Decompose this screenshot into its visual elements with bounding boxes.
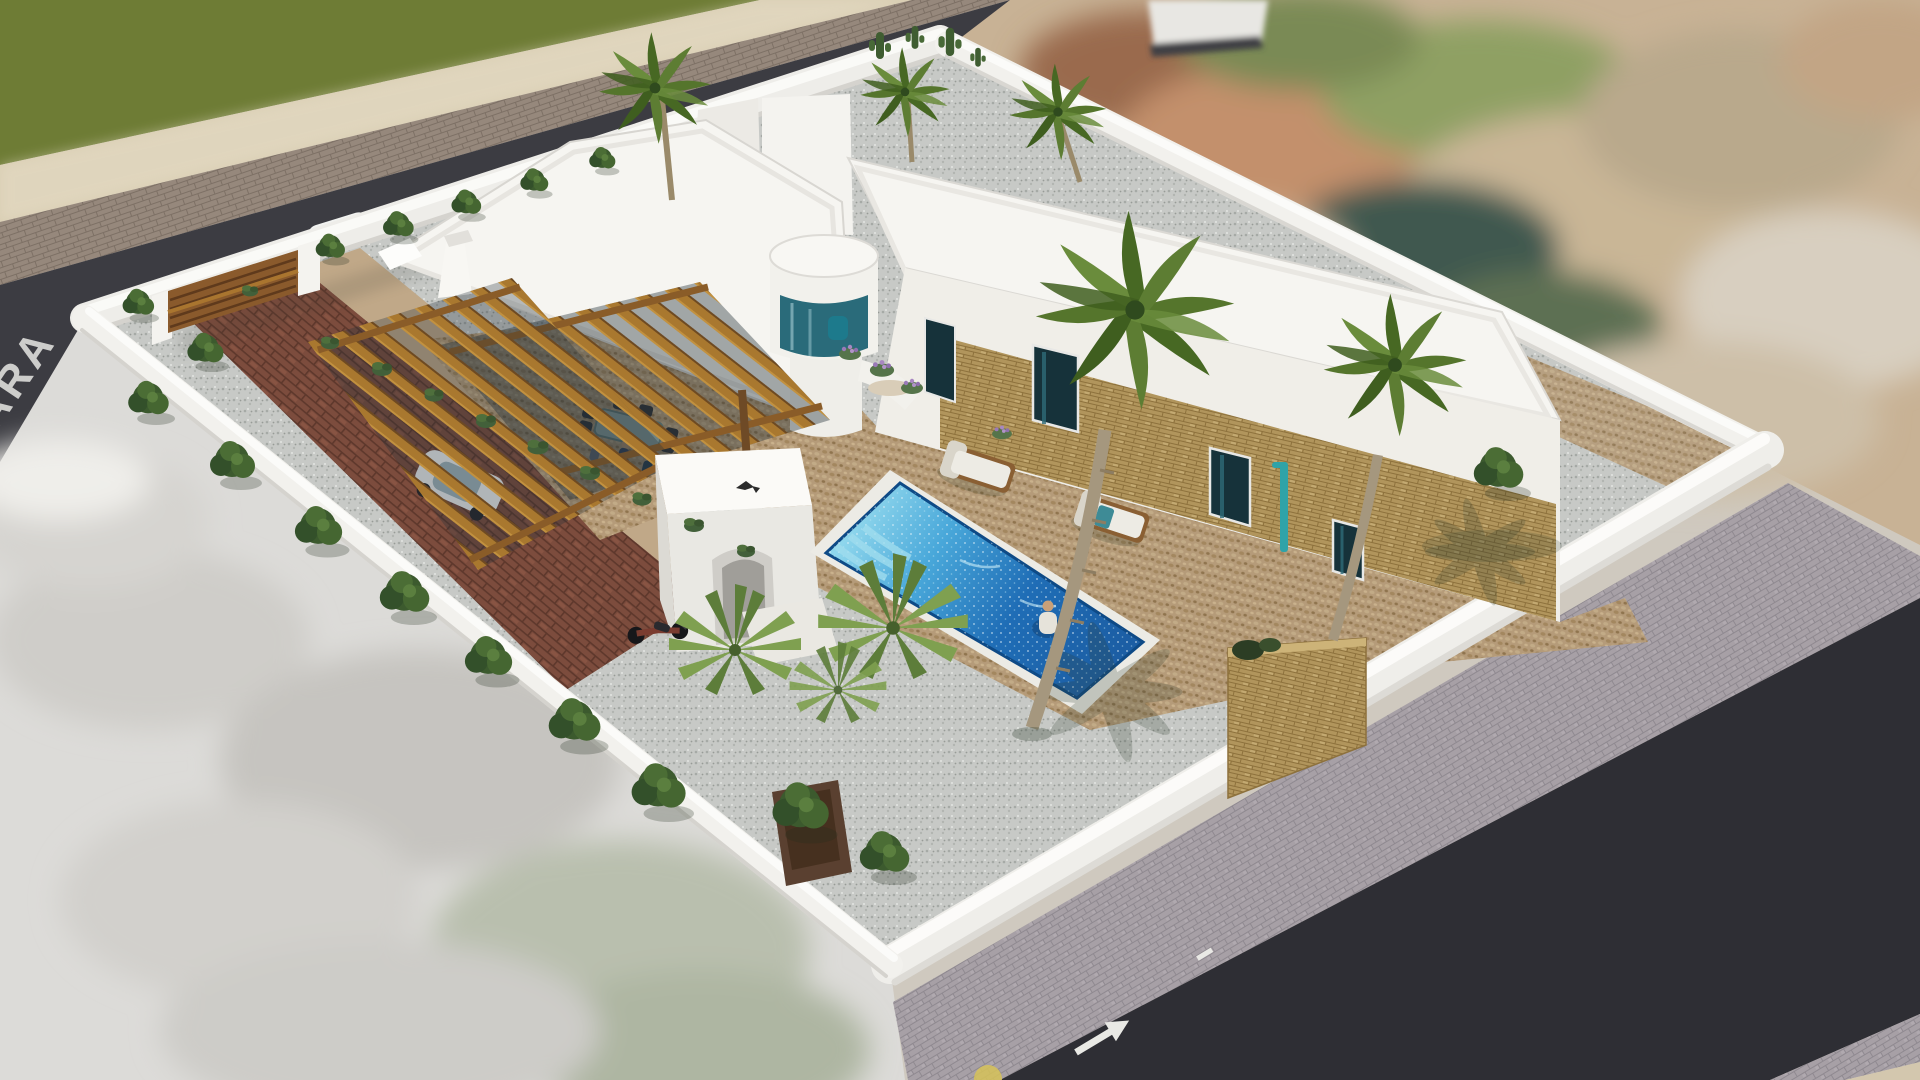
wall-plant: [1232, 640, 1264, 660]
teal-armchair: [828, 316, 848, 340]
villa-aerial-render: ARA: [0, 0, 1920, 1080]
render-canvas: ARA: [0, 0, 1920, 1080]
neighbor-structure: [1148, 0, 1268, 57]
